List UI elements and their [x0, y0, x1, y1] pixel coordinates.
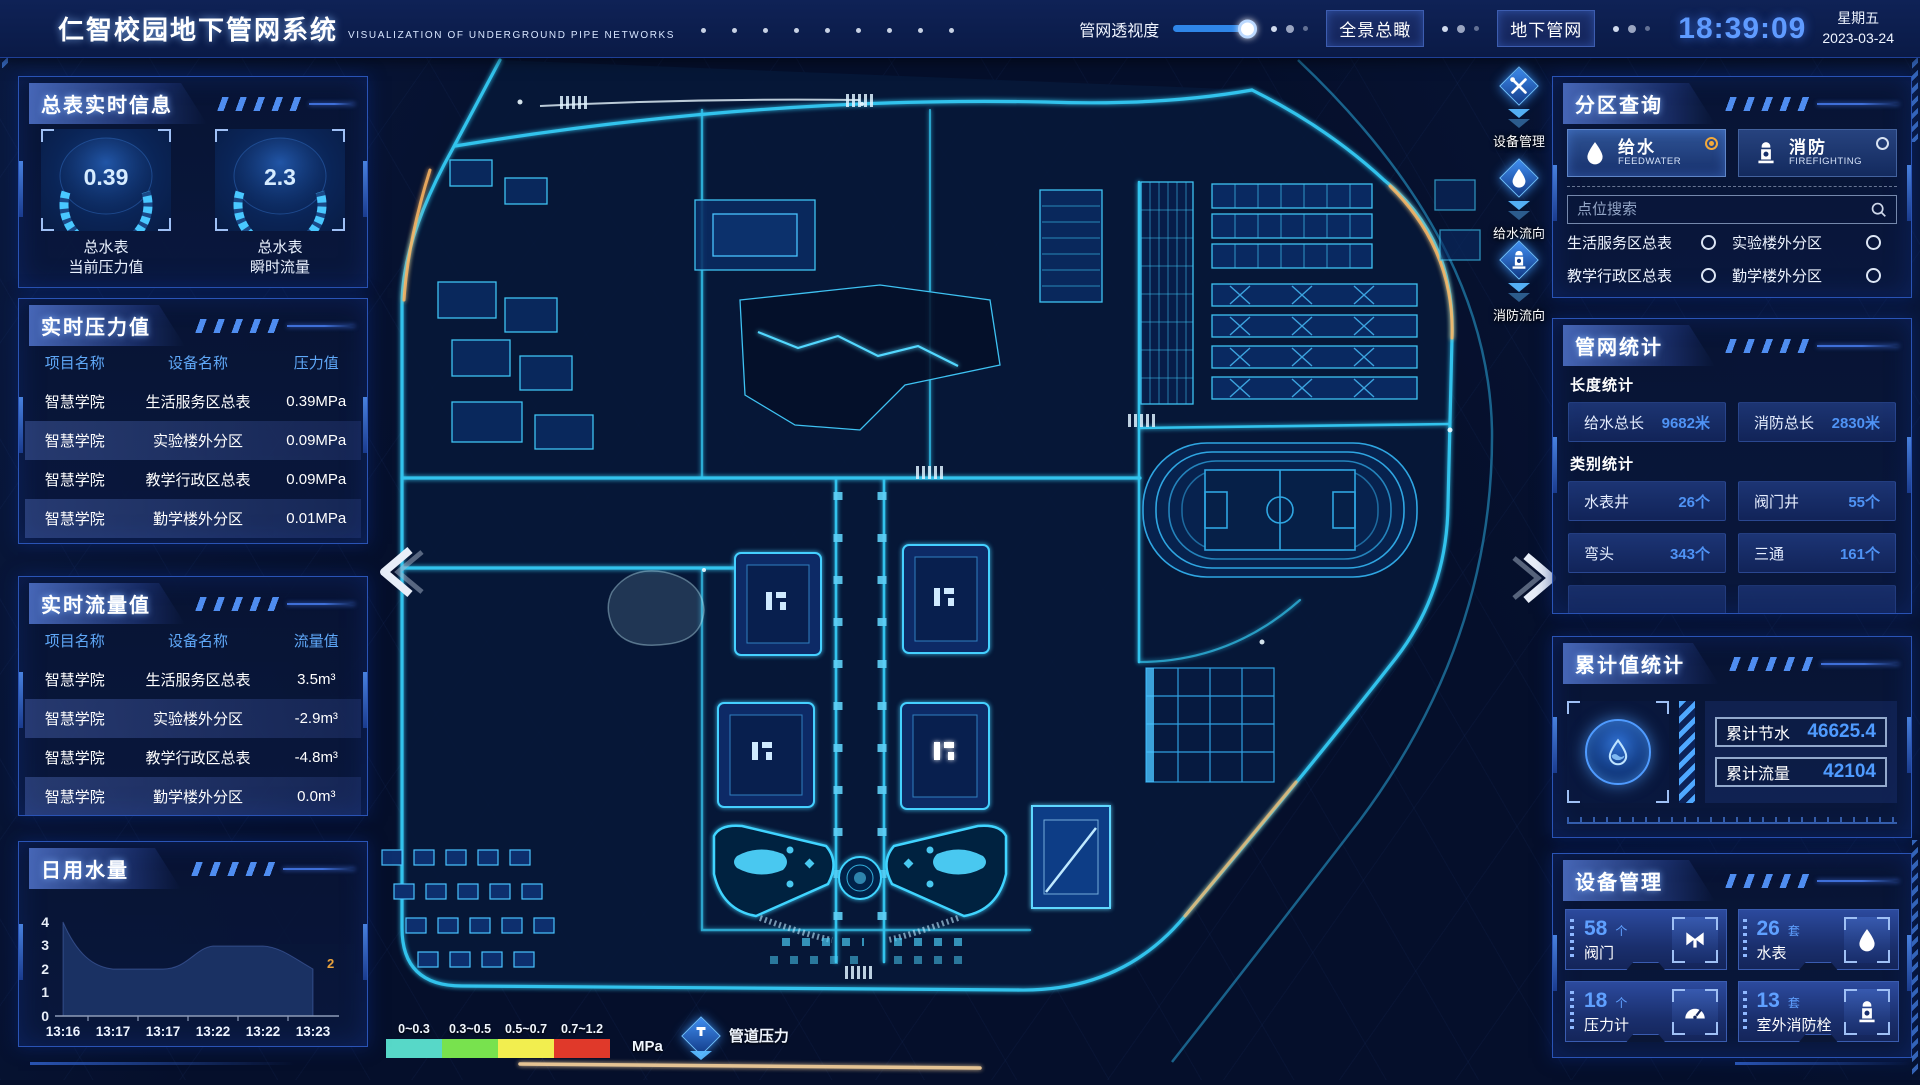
map-tool-feedwater-flow[interactable]: 给水流向	[1480, 158, 1558, 242]
gauge-metric: 瞬时流量	[215, 258, 345, 278]
gauge-value: 2.3	[264, 164, 296, 190]
radio-icon[interactable]	[1866, 268, 1881, 283]
radio-selected-icon[interactable]	[1705, 137, 1718, 150]
slashes-decoration	[217, 97, 301, 111]
chevron-down-icon	[1508, 293, 1530, 302]
stat-box: 水表井26个	[1568, 481, 1726, 521]
y-tick: 2	[41, 961, 49, 977]
stat-box-clipped	[1568, 585, 1726, 614]
overview-button[interactable]: 全景总瞰	[1326, 10, 1424, 47]
panel-title: 总表实时信息	[41, 95, 173, 117]
head-line	[1821, 663, 1899, 665]
device-card-water-meter[interactable]: 26套 水表	[1738, 909, 1900, 970]
x-tick: 13:23	[296, 1024, 331, 1039]
chevron-down-icon	[1508, 211, 1530, 220]
x-tick: 13:17	[96, 1024, 131, 1039]
chevron-down-icon	[690, 1051, 712, 1060]
pipe-pressure-icon-wrap	[679, 1014, 723, 1058]
legend-unit: MPa	[632, 1038, 663, 1055]
water-badge	[1567, 701, 1669, 803]
tab-label: 消防	[1789, 138, 1862, 158]
map-tool-device-management[interactable]: 设备管理	[1480, 66, 1558, 150]
water-drop-icon	[1582, 140, 1608, 166]
hydrant-icon	[1753, 140, 1779, 166]
header: 仁智校园地下管网系统 VISUALIZATION OF UNDERGROUND …	[0, 0, 1920, 58]
cumulative-row: 累计节水 46625.4	[1715, 717, 1887, 747]
east-hall	[1032, 806, 1110, 908]
slashes-decoration	[195, 319, 279, 333]
search-icon[interactable]	[1870, 201, 1887, 218]
panel-master-meter: 总表实时信息 0.39 总水表 当前压力值	[18, 76, 368, 288]
y-tick: 4	[41, 914, 49, 930]
panel-flow-values: 实时流量值 项目名称 设备名称 流量值 智慧学院生活服务区总表3.5m³ 智慧学…	[18, 576, 368, 816]
column-header: 项目名称	[25, 630, 124, 651]
tools-icon	[1508, 75, 1530, 97]
time-display: 18:39:09	[1678, 12, 1806, 46]
flow-gauge: 2.3 总水表 瞬时流量	[215, 129, 345, 277]
daily-water-chart: 0 1 2 3 4 13:16 13:17 13:17 13:22 13:22 …	[27, 888, 363, 1047]
table-row: 智慧学院勤学楼外分区0.0m³	[25, 777, 361, 816]
dots-decoration	[1271, 25, 1308, 33]
slider-handle-icon[interactable]	[1238, 19, 1257, 38]
panel-title: 管网统计	[1575, 337, 1663, 359]
column-header: 设备名称	[124, 352, 271, 373]
grid-structure	[1146, 668, 1274, 782]
app-title: 仁智校园地下管网系统	[58, 10, 338, 47]
stat-box: 阀门井55个	[1738, 481, 1896, 521]
tab-sublabel: FIREFIGHTING	[1789, 157, 1862, 168]
stat-box: 三通161个	[1738, 533, 1896, 573]
list-item[interactable]: 教学行政区总表	[1567, 259, 1732, 292]
date: 2023-03-24	[1822, 29, 1894, 49]
edge-decoration	[1912, 840, 1918, 1075]
dots-decoration	[1442, 25, 1479, 33]
slashes-decoration	[1725, 874, 1809, 888]
panel-title: 累计值统计	[1575, 655, 1685, 677]
panel-title: 实时压力值	[41, 317, 151, 339]
section-title: 类别统计	[1570, 453, 1894, 474]
dots-decoration	[1613, 25, 1650, 33]
table-row: 智慧学院教学行政区总表0.09MPa	[25, 460, 361, 499]
chevron-down-icon	[1508, 283, 1530, 292]
transparency-label: 管网透视度	[1079, 17, 1159, 41]
x-tick: 13:22	[246, 1024, 281, 1039]
head-line	[1817, 345, 1899, 347]
stadium	[1143, 443, 1417, 577]
column-header: 设备名称	[124, 630, 271, 651]
y-tick: 1	[41, 984, 49, 1000]
radio-icon[interactable]	[1701, 268, 1716, 283]
gauge-name: 总水表	[215, 238, 345, 258]
slashes-decoration	[1725, 339, 1809, 353]
head-line	[287, 325, 355, 327]
stat-box: 消防总长2830米	[1738, 402, 1896, 442]
table-row: 智慧学院实验楼外分区0.09MPa	[25, 421, 361, 460]
header-dots	[701, 28, 954, 33]
tab-sublabel: FEEDWATER	[1618, 157, 1681, 168]
list-item[interactable]: 宿舍区泵房	[1732, 292, 1897, 298]
list-item[interactable]: 实验楼外分区	[1732, 226, 1897, 259]
x-tick: 13:16	[46, 1024, 81, 1039]
panel-pressure-values: 实时压力值 项目名称 设备名称 压力值 智慧学院生活服务区总表0.39MPa 智…	[18, 298, 368, 544]
search-box[interactable]	[1567, 195, 1897, 224]
head-line	[283, 868, 355, 870]
x-tick: 13:22	[196, 1024, 231, 1039]
panel-title: 设备管理	[1575, 872, 1663, 894]
device-card-pressure-gauge[interactable]: 18个 压力计	[1565, 981, 1727, 1042]
head-line	[309, 103, 355, 105]
legend-range: 0.5~0.7	[498, 1022, 554, 1036]
gauge-name: 总水表	[41, 238, 171, 258]
clock: 18:39:09 星期五 2023-03-24	[1678, 9, 1894, 48]
table-row: 智慧学院生活服务区总表3.5m³	[25, 660, 361, 699]
pipe-pressure-icon	[692, 1024, 710, 1042]
table-row: 智慧学院教学行政区总表-4.8m³	[25, 738, 361, 777]
stripe-divider	[1679, 701, 1695, 803]
panel-daily-water: 日用水量 0 1 2 3 4 13:16 13:17 13:17 13:22 1…	[18, 841, 368, 1047]
gauge-metric: 当前压力值	[41, 258, 171, 278]
panel-network-stats: 管网统计 长度统计 给水总长9682米 消防总长2830米 类别统计 水表井26…	[1552, 318, 1912, 614]
hydrant-icon	[1508, 249, 1530, 271]
table-row: 智慧学院实验楼外分区-2.9m³	[25, 699, 361, 738]
column-header: 项目名称	[25, 352, 124, 373]
device-card-valve[interactable]: 58个 阀门	[1565, 909, 1727, 970]
last-value-label: 2	[327, 956, 334, 971]
radio-icon[interactable]	[1866, 235, 1881, 250]
panel-cumulative-stats: 累计值统计 累计节水 46625.4 累计流量 42104	[1552, 636, 1912, 838]
legend-title: 管道压力	[729, 1025, 789, 1046]
deco-bar	[30, 1062, 295, 1065]
radio-unselected-icon[interactable]	[1876, 137, 1889, 150]
list-item[interactable]: 勤学楼外分区	[1732, 259, 1897, 292]
list-item[interactable]: 砺学楼外分区	[1567, 292, 1732, 298]
panel-title: 日用水量	[41, 860, 129, 882]
pressure-table: 项目名称 设备名称 压力值 智慧学院生活服务区总表0.39MPa 智慧学院实验楼…	[25, 345, 361, 544]
table-row: 智慧学院生活服务区总表0.39MPa	[25, 382, 361, 421]
map-tool-label: 设备管理	[1480, 131, 1558, 150]
panel-title: 分区查询	[1575, 95, 1663, 117]
water-drop-icon	[1604, 738, 1632, 766]
legend-range: 0~0.3	[386, 1022, 442, 1036]
y-tick: 3	[41, 937, 49, 953]
radio-icon[interactable]	[1701, 235, 1716, 250]
dashed-divider	[1567, 186, 1897, 187]
water-drop-icon	[1508, 167, 1530, 189]
head-line	[287, 603, 355, 605]
tab-label: 给水	[1618, 138, 1681, 158]
slashes-decoration	[195, 597, 279, 611]
head-line	[1817, 103, 1899, 105]
search-input[interactable]	[1577, 201, 1862, 218]
chevron-down-icon	[1508, 201, 1530, 210]
column-header: 流量值	[272, 630, 361, 651]
table-row: 智慧学院砺学楼外分区0.09MPa	[25, 538, 361, 544]
weekday: 星期五	[1822, 9, 1894, 29]
chevron-down-icon	[1508, 119, 1530, 128]
panel-device-management: 设备管理 58个 阀门 26套 水表	[1552, 853, 1912, 1058]
app-subtitle: VISUALIZATION OF UNDERGROUND PIPE NETWOR…	[348, 30, 675, 41]
slashes-decoration	[191, 862, 275, 876]
stat-box: 弯头343个	[1568, 533, 1726, 573]
gauge-value: 0.39	[84, 164, 129, 190]
table-row: 智慧学院勤学楼外分区0.01MPa	[25, 499, 361, 538]
transparency-slider[interactable]	[1173, 25, 1253, 32]
slashes-decoration	[1729, 657, 1813, 671]
panel-title: 实时流量值	[41, 595, 151, 617]
stat-box: 给水总长9682米	[1568, 402, 1726, 442]
pressure-gauge: 0.39 总水表 当前压力值	[41, 129, 171, 277]
tab-firefighting[interactable]: 消防 FIREFIGHTING	[1738, 129, 1897, 177]
legend-range: 0.7~1.2	[554, 1022, 610, 1036]
flow-table: 项目名称 设备名称 流量值 智慧学院生活服务区总表3.5m³ 智慧学院实验楼外分…	[25, 623, 361, 816]
legend-color-bar	[386, 1039, 610, 1058]
pond	[608, 571, 704, 645]
map-tool-label: 消防流向	[1480, 305, 1558, 324]
stat-box-clipped	[1738, 585, 1896, 614]
y-tick: 0	[41, 1008, 49, 1024]
device-card-outdoor-hydrant[interactable]: 13套 室外消防栓	[1738, 981, 1900, 1042]
map-arrow-left[interactable]	[370, 544, 428, 600]
list-item[interactable]: 生活服务区总表	[1567, 226, 1732, 259]
tab-feedwater[interactable]: 给水 FEEDWATER	[1567, 129, 1726, 177]
zone-list: 生活服务区总表 实验楼外分区 教学行政区总表 勤学楼外分区 砺学楼外分区 宿舍区…	[1567, 226, 1897, 298]
chevron-down-icon	[1508, 109, 1530, 118]
map-tool-firefighting-flow[interactable]: 消防流向	[1480, 240, 1558, 324]
cumulative-row: 累计流量 42104	[1715, 757, 1887, 787]
section-title: 长度统计	[1570, 374, 1894, 395]
head-line	[1817, 880, 1899, 882]
panel-zone-query: 分区查询 给水 FEEDWATER 消防 FIREFIGHTING	[1552, 76, 1912, 298]
pressure-legend: 0~0.3 0.3~0.5 0.5~0.7 0.7~1.2 MPa 管道压力	[386, 1014, 789, 1058]
column-header: 压力值	[272, 352, 361, 373]
ruler-decoration	[1567, 817, 1897, 824]
deco-bar	[1735, 1062, 1910, 1065]
underground-button[interactable]: 地下管网	[1497, 10, 1595, 47]
slashes-decoration	[1725, 97, 1809, 111]
x-tick: 13:17	[146, 1024, 181, 1039]
legend-range: 0.3~0.5	[442, 1022, 498, 1036]
